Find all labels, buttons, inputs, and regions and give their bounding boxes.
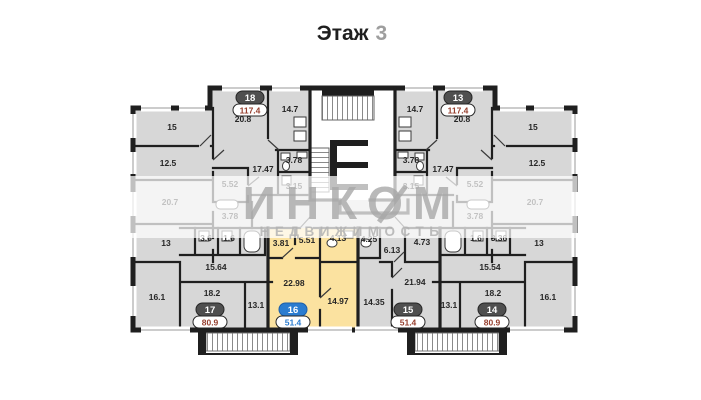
floor-plan-page: Этаж3 — [0, 0, 701, 400]
room-area-label: 15.64 — [205, 262, 227, 272]
room-area-label: 21.94 — [404, 277, 426, 287]
room-area-label: 17.47 — [432, 164, 454, 174]
room-area-label: 3.78 — [286, 155, 303, 165]
apartment-area: 80.9 — [202, 318, 219, 328]
room-area-label: 17.47 — [252, 164, 274, 174]
room-area-label: 13.1 — [248, 300, 265, 310]
apartment-area: 51.4 — [400, 318, 417, 328]
room-area-label: 14.7 — [282, 104, 299, 114]
balcony-right — [407, 331, 507, 354]
room-area-label: 15.54 — [479, 262, 501, 272]
apartment-area: 117.4 — [240, 106, 261, 116]
room-area-label: 16.1 — [149, 292, 166, 302]
watermark: ИНКОМ НЕДВИЖИМОСТЬ — [128, 176, 577, 239]
floor-number: 3 — [376, 22, 388, 45]
room-area-label: 3.81 — [273, 238, 290, 248]
room-area-label: 22.98 — [283, 278, 305, 288]
room-area-label: 13 — [161, 238, 171, 248]
room-area-label: 3.78 — [403, 155, 420, 165]
room-area-label: 15 — [528, 122, 538, 132]
room-area-label: 12.5 — [529, 158, 546, 168]
room-area-label: 14.7 — [407, 104, 424, 114]
watermark-subtitle: НЕДВИЖИМОСТЬ — [260, 224, 445, 239]
apartment-number: 13 — [453, 93, 464, 104]
apartment-area: 80.9 — [484, 318, 501, 328]
apartment-number: 18 — [245, 93, 256, 104]
apartment-number: 15 — [403, 305, 414, 316]
balcony-left — [198, 331, 298, 354]
apartment-area: 51.4 — [285, 318, 302, 328]
apartment-number: 17 — [205, 305, 216, 316]
floor-word: Этаж — [317, 22, 370, 45]
apartment-number: 16 — [288, 305, 299, 316]
room-area-label: 6.13 — [384, 245, 401, 255]
room-area-label: 15 — [167, 122, 177, 132]
apartment-number: 14 — [487, 305, 498, 316]
room-area-label: 14.35 — [363, 297, 385, 307]
room-area-label: 14.97 — [327, 296, 349, 306]
room-area-label: 16.1 — [540, 292, 557, 302]
page-title: Этаж3 — [317, 22, 387, 45]
watermark-brand: ИНКОМ — [243, 177, 461, 229]
room-area-label: 12.5 — [160, 158, 177, 168]
room-area-label: 18.2 — [204, 288, 221, 298]
floor-plan: Этаж3 — [0, 0, 701, 400]
apartment-area: 117.4 — [448, 106, 469, 116]
room-area-label: 13.1 — [441, 300, 458, 310]
room-area-label: 13 — [534, 238, 544, 248]
room-area-label: 18.2 — [485, 288, 502, 298]
